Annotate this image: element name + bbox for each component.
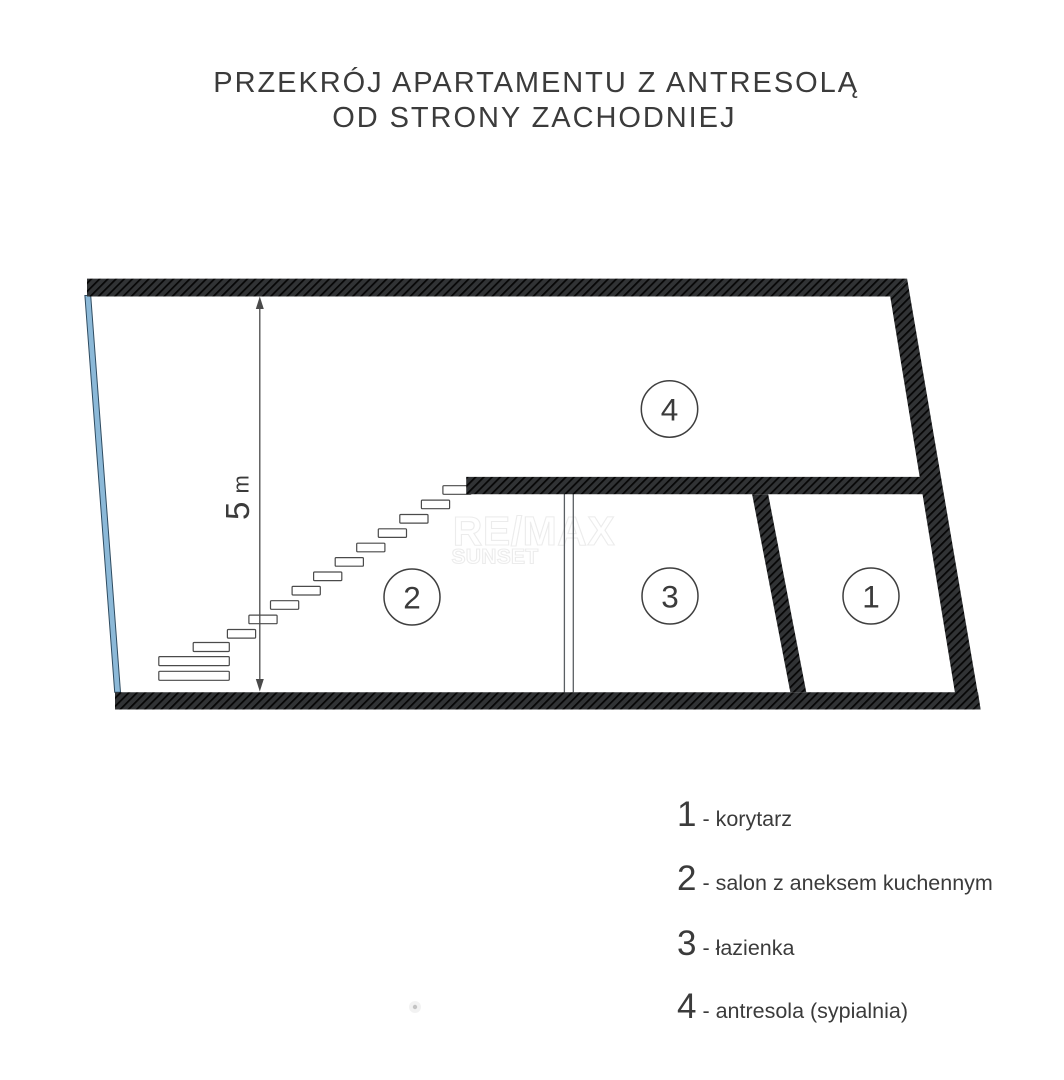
svg-text:4: 4 (661, 391, 679, 427)
svg-text:5: 5 (219, 502, 256, 520)
svg-text:3: 3 (661, 578, 679, 614)
svg-text:m: m (229, 475, 254, 493)
svg-text:SUNSET: SUNSET (452, 545, 539, 568)
svg-text:1: 1 (862, 578, 880, 614)
svg-text:2: 2 (403, 579, 421, 615)
